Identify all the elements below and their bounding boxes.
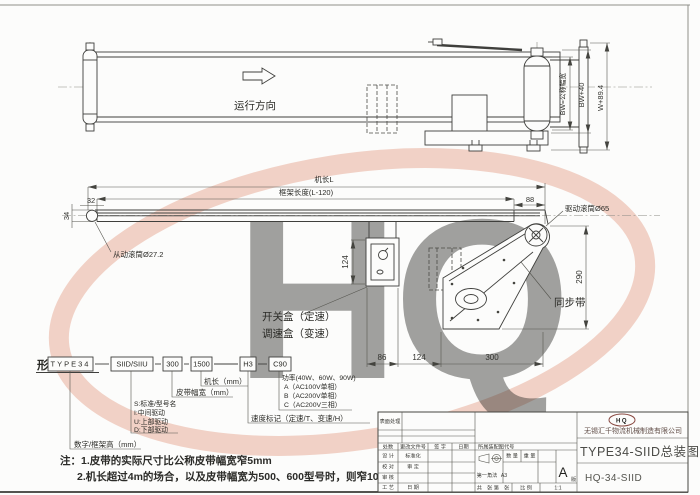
- dim-bw-plus-40: BW+40: [577, 83, 586, 108]
- designation-box-speed: H3: [243, 360, 253, 369]
- scale-label: 比 例: [520, 484, 532, 492]
- drawing-title: TYPE34-SIID总装图: [580, 445, 700, 459]
- process-label: 工 艺: [382, 484, 394, 491]
- designation-box-type: TYPE34: [51, 360, 91, 369]
- title-block: 表面处理 处数 更改文件号 签 字 日期 所属装配图代号 设 计 标准化 校 对…: [378, 412, 700, 492]
- sheet-size-label: A3: [501, 473, 507, 479]
- label-power: 功率(40W、60W、90W): [282, 373, 356, 382]
- label-code-d: D:下部驱动: [134, 425, 168, 434]
- standard-label: 标准化: [405, 452, 421, 460]
- approve-label: 审 定: [407, 463, 419, 471]
- designation-box-width: 300: [166, 360, 179, 369]
- tail-roller-label: 从动滚筒Ø27.2: [113, 249, 163, 259]
- weight-label: 重 量: [524, 452, 536, 460]
- sync-belt-label: 同步带: [554, 297, 586, 309]
- check-label: 校 对: [382, 463, 394, 471]
- qty-label: 数 量: [506, 452, 518, 460]
- dim-w-plus-894: W+89.4: [596, 85, 605, 111]
- label-code-s: S:标准/型号名: [134, 399, 176, 408]
- label-belt-width: 皮带幅宽（mm）: [176, 387, 234, 397]
- drive-roller-label: 驱动滚筒Ø65: [565, 203, 609, 213]
- designation-box-drive: SIID/SIIU: [116, 360, 147, 369]
- dim-machine-length: 机长L: [314, 174, 333, 184]
- belongs-label: 所属装配图代号: [478, 443, 514, 451]
- dim-86: 86: [378, 353, 387, 362]
- label-power-a: A（AC100V单相）: [284, 382, 341, 391]
- label-power-c: C（AC200V三相）: [284, 400, 341, 409]
- notes: 注：1.皮带的实际尺寸比公称皮带幅宽窄5mm 2.机长超过4m的场合，以及皮带幅…: [60, 454, 397, 483]
- revision-letter: A: [558, 465, 567, 480]
- dim-124-box: 124: [341, 255, 350, 269]
- dim-belt-width: BW=公称幅宽: [558, 73, 567, 115]
- designation-box-power: C90: [273, 360, 287, 369]
- surface-treatment-label: 表面处理: [380, 417, 402, 425]
- drawing-number: HQ-34-SIID: [585, 473, 642, 484]
- sheets-label: 共 张 第 张: [477, 484, 510, 492]
- dim-frame-length: 框架长度(L-120): [279, 187, 334, 197]
- label-code-u: U:上部驱动: [134, 417, 168, 426]
- dim-300: 300: [485, 353, 499, 362]
- switch-box-label: 开关盒（定速）: [262, 310, 336, 323]
- dim-88: 88: [526, 195, 534, 204]
- rev-date-label: 日期: [458, 444, 468, 451]
- projection-label: 第一角法: [477, 471, 498, 479]
- dim-290: 290: [575, 270, 584, 284]
- label-frame-height: 数字/框架高（mm）: [74, 439, 141, 449]
- label-machine-length: 机长（mm）: [204, 376, 247, 386]
- hq-logo-letters: HQ: [616, 419, 628, 425]
- dim-32: 32: [87, 196, 95, 205]
- design-label: 设 计: [382, 452, 394, 460]
- revision-suffix: 版: [571, 475, 576, 483]
- rev-count-label: 处数: [383, 443, 394, 451]
- audit-label: 审 核: [382, 473, 394, 481]
- drawing-sheet: HQ: [0, 0, 700, 495]
- rev-sign-label: 签 字: [434, 443, 446, 451]
- note-line-1: 注：1.皮带的实际尺寸比公称皮带幅宽窄5mm: [60, 454, 272, 467]
- plan-view: 运行方向 BW=公称幅宽 BW+40 W+89.4: [58, 39, 652, 153]
- label-power-b: B（AC200V单相）: [284, 391, 341, 400]
- speed-box-label: 调速盒（变速）: [262, 327, 336, 340]
- dim-124: 124: [412, 353, 426, 362]
- label-speed-mark: 速度标记（定速/T、变速/H）: [251, 413, 348, 423]
- dim-34: 34: [62, 212, 71, 220]
- note-line-2: 2.机长超过4m的场合，以及皮带幅宽为500、600型号时，则窄10mm: [77, 470, 397, 483]
- rev-doc-label: 更改文件号: [400, 443, 426, 451]
- company-name: 无锡汇千物流机械制造有限公司: [584, 426, 682, 435]
- scale-value: 1:1: [554, 486, 561, 492]
- designation-box-length: 1500: [193, 360, 210, 369]
- label-code-i: I:中间驱动: [134, 408, 165, 417]
- direction-label: 运行方向: [234, 99, 276, 112]
- date-label: 日 期: [407, 484, 419, 491]
